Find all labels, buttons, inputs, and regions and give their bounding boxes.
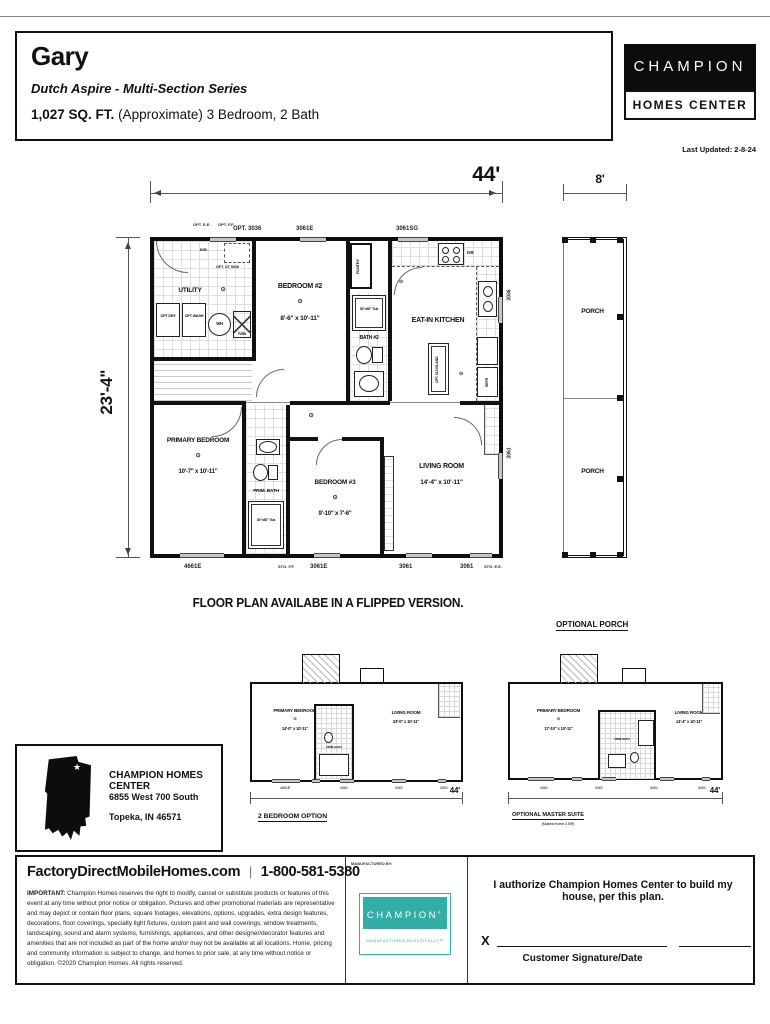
- authorization-text: I authorize Champion Homes Center to bui…: [479, 879, 747, 903]
- window-label: 3061: [540, 786, 548, 790]
- optional-porch-heading: OPTIONAL PORCH: [556, 620, 628, 631]
- star-icon: ★: [73, 762, 81, 773]
- shower: [638, 720, 654, 746]
- champion-teal-wordmark: CHAMPION®: [363, 897, 447, 929]
- window: [702, 777, 710, 781]
- sqft-detail: (Approximate) 3 Bedroom, 2 Bath: [118, 107, 319, 122]
- main-floor-plan: UTILITY ⊙ B/B OPT. UT SINK OPT DRY OPT W…: [150, 237, 503, 558]
- wall: [342, 437, 384, 441]
- dim-label: 44': [690, 786, 720, 796]
- refrigerator-label: REFR: [485, 371, 489, 395]
- window-label: 3061E: [310, 564, 327, 570]
- ceiling-light-symbol: ⊙: [254, 299, 346, 306]
- arrow-left-icon: [151, 190, 161, 196]
- dealer-address2: Topeka, IN 46571: [109, 812, 181, 822]
- arrow-up-icon: [125, 239, 131, 249]
- dim-depth-label: 23'-4": [97, 347, 117, 437]
- important-label: IMPORTANT:: [27, 890, 65, 897]
- sink-bowl: [483, 286, 493, 297]
- porch-label: PORCH: [564, 308, 621, 316]
- window: [314, 553, 340, 558]
- window: [300, 237, 326, 242]
- living-room-dims: 14'-4" x 10'-11": [658, 719, 720, 724]
- arrow-right-icon: [489, 190, 499, 196]
- window: [438, 779, 446, 783]
- pantry: PANTRY: [350, 243, 372, 289]
- porch-post: [617, 237, 623, 243]
- window-label: 3061: [650, 786, 658, 790]
- sink: [259, 441, 277, 453]
- website-link[interactable]: FactoryDirectMobileHomes.com: [27, 864, 240, 880]
- porch-divider: [564, 398, 622, 399]
- champion-logo: CHAMPION HOMES CENTER: [624, 44, 756, 124]
- island-label: OPT. 613 ISLAND: [435, 348, 439, 392]
- burner-icon: [453, 256, 460, 263]
- burner-icon: [442, 247, 449, 254]
- signature-caption: Customer Signature/Date: [505, 953, 660, 964]
- window-label: STG. E.E.: [484, 564, 502, 569]
- window: [312, 779, 320, 783]
- porch: PORCH PORCH: [563, 237, 627, 558]
- model-title: Gary: [31, 41, 88, 72]
- kitchen-island: OPT. 613 ISLAND: [428, 343, 449, 395]
- window: [470, 553, 492, 558]
- opt-utility-sink-label: OPT. UT SINK: [216, 265, 239, 269]
- champion-logo-wordmark: CHAMPION: [624, 44, 756, 90]
- porch-bump: [302, 654, 340, 684]
- primary-bedroom-label: PRIMARY BEDROOM: [154, 437, 242, 445]
- optional-washer: OPT WASH: [182, 303, 206, 337]
- window-label: OPT. F.F.: [218, 222, 234, 227]
- burner-icon: [442, 256, 449, 263]
- water-heater: WH: [208, 313, 231, 336]
- bathtub: 30"x60" Tub: [352, 295, 386, 331]
- wall: [154, 401, 246, 405]
- toilet: [324, 732, 333, 743]
- dim-tick: [626, 184, 627, 201]
- living-room-dims: 14'-4" x 10'-11": [384, 479, 499, 487]
- window: [180, 553, 224, 558]
- door-swing-arc: [256, 369, 284, 397]
- manufactured-by-label: MANUFACTURED BY:: [351, 861, 392, 866]
- entry-stoop: [622, 668, 646, 684]
- window: [660, 777, 674, 781]
- top-rule: [0, 16, 770, 17]
- toilet: [253, 464, 268, 481]
- window-label: OPT. 3036: [233, 226, 261, 232]
- marriage-line: [390, 402, 460, 403]
- signature-x-label: X: [481, 933, 490, 948]
- door-swing-arc: [156, 241, 188, 273]
- window-label: 3061: [340, 786, 348, 790]
- champion-tagline: MANUFACTURED BEAUTIFULLY™: [363, 929, 447, 953]
- window-label: 3061: [399, 564, 412, 570]
- ceiling-light-symbol: ⊙: [454, 371, 468, 377]
- utility-label: UTILITY: [158, 287, 222, 295]
- bb-label: B/B: [200, 247, 207, 252]
- bedroom3-dims: 9'-10" x 7'-6": [290, 511, 380, 518]
- primary-bath-label: PRIM. BATH: [246, 489, 286, 495]
- porch-post: [562, 552, 568, 558]
- furnace: FURN: [233, 311, 251, 338]
- entry-closet: [438, 684, 460, 718]
- dim-width-label: 44': [430, 162, 500, 187]
- toilet: [356, 346, 372, 364]
- window: [406, 553, 432, 558]
- contact-line: FactoryDirectMobileHomes.com | 1-800-581…: [27, 864, 360, 880]
- door-swing-arc: [394, 267, 422, 295]
- wall-oven: [477, 337, 498, 365]
- db-label: DB: [467, 250, 474, 255]
- disclaimer-text: IMPORTANT: Champion Homes reserves the r…: [27, 889, 337, 970]
- refrigerator: REFR: [477, 367, 498, 397]
- porch-post: [590, 237, 596, 243]
- sink: [359, 375, 379, 392]
- pantry-label: PANTRY: [356, 247, 361, 287]
- furnace-label: FURN: [234, 333, 250, 337]
- spec-sheet-page: Gary Dutch Aspire - Multi-Section Series…: [0, 0, 770, 1024]
- range: [438, 243, 464, 265]
- porch-post: [562, 237, 568, 243]
- window-label: 3061: [507, 447, 513, 458]
- footer-box: FactoryDirectMobileHomes.com | 1-800-581…: [15, 855, 755, 985]
- porch-label: PORCH: [564, 468, 621, 476]
- window-label: 4661E: [184, 564, 201, 570]
- porch-bump: [560, 654, 598, 684]
- door-swing-arc: [454, 417, 482, 445]
- primary-bath-label: PRIM. BATH: [602, 738, 642, 742]
- ceiling-light-symbol: ⊙: [154, 453, 242, 460]
- window-label: OPT. E.E.: [193, 222, 211, 227]
- double-sink: [478, 281, 497, 317]
- champion-teal-logo: CHAMPION® MANUFACTURED BEAUTIFULLY™: [359, 893, 451, 955]
- window: [340, 779, 354, 783]
- primary-bath-room: PRIM. BATH: [598, 710, 656, 779]
- window-label: 3061: [395, 786, 403, 790]
- dim-depth-line: [128, 237, 129, 558]
- bath2-room: 30"x60" Tub BATH #2: [350, 293, 388, 401]
- plan-master-suite: PRIMARY BEDROOM ⊙ 17'-10" x 10'-11" PRIM…: [508, 682, 723, 780]
- window: [392, 779, 406, 783]
- bathtub: [319, 754, 349, 776]
- vanity: [608, 754, 626, 768]
- ceiling-light-symbol: ⊙: [290, 495, 380, 502]
- last-updated: Last Updated: 2-8-24: [620, 145, 756, 154]
- dealer-box: ★ CHAMPION HOMES CENTER 6855 West 700 So…: [15, 744, 223, 852]
- window: [272, 779, 300, 783]
- bedroom3-label: BEDROOM #3: [290, 479, 380, 487]
- porch-post: [617, 395, 623, 401]
- ceiling-light-symbol: ⊙: [516, 717, 601, 722]
- optional-dryer-label: OPT DRY: [157, 314, 179, 319]
- window-label: 3061: [460, 564, 473, 570]
- signature-line[interactable]: [497, 933, 667, 947]
- dim-tick: [462, 792, 463, 804]
- door-swing-arc: [212, 407, 242, 437]
- separator: |: [244, 864, 257, 879]
- series-subtitle: Dutch Aspire - Multi-Section Series: [31, 81, 247, 96]
- primary-bath-label: PRIM. BATH: [316, 746, 352, 750]
- header-box: Gary Dutch Aspire - Multi-Section Series…: [15, 31, 613, 141]
- dim-tick: [508, 792, 509, 804]
- plan-master-caption: OPTIONAL MASTER SUITE: [512, 812, 584, 820]
- living-room-label: LIVING ROOM: [384, 463, 499, 471]
- door-swing-arc: [316, 439, 342, 465]
- dim-tick: [722, 792, 723, 804]
- living-room-dims: 23'-0" x 10'-11": [370, 719, 442, 724]
- dim-porch-label: 8': [580, 172, 620, 186]
- dim-tick: [250, 792, 251, 804]
- bath2-label: BATH #2: [350, 335, 388, 341]
- kitchen-label: EAT-IN KITCHEN: [398, 317, 478, 325]
- indiana-state-icon: [43, 756, 91, 840]
- dim-line: [508, 798, 723, 799]
- window: [498, 453, 503, 479]
- primary-bedroom-dims: 10'-7" x 10'-11": [154, 469, 242, 476]
- flipped-version-note: FLOOR PLAN AVAILABE IN A FLIPPED VERSION…: [159, 596, 497, 611]
- porch-post: [617, 552, 623, 558]
- disclaimer-body: Champion Homes reserves the right to mod…: [27, 890, 335, 967]
- dim-label: 44': [430, 786, 460, 796]
- entry-stoop: [360, 668, 384, 684]
- sink-bowl: [483, 301, 493, 312]
- window: [398, 237, 428, 242]
- window: [498, 297, 503, 323]
- kitchen-room: DB EAT-IN KITCHEN ⊙ ⊙ OPT. 613 ISLAND RE…: [392, 241, 499, 401]
- storage-area: [154, 361, 252, 401]
- toilet-tank: [372, 347, 383, 363]
- sqft-line: 1,027 SQ. FT. (Approximate) 3 Bedroom, 2…: [31, 107, 319, 122]
- dim-width-line: [150, 193, 503, 194]
- dealer-name: CHAMPION HOMES CENTER: [109, 770, 221, 792]
- divider: [467, 857, 468, 983]
- window: [572, 777, 582, 781]
- primary-bedroom-dims: 17'-10" x 10'-11": [516, 726, 601, 731]
- toilet-tank: [268, 465, 278, 480]
- dealer-address1: 6855 West 700 South: [109, 792, 198, 802]
- arrow-down-icon: [125, 548, 131, 558]
- entry-closet: [484, 405, 499, 455]
- champion-teal-text: CHAMPION: [367, 910, 438, 921]
- bedroom2-label: BEDROOM #2: [254, 283, 346, 291]
- ceiling-light-symbol: ⊙: [216, 287, 230, 294]
- sqft-value: 1,027 SQ. FT.: [31, 107, 114, 122]
- living-room-label: LIVING ROOM: [370, 710, 442, 716]
- registered-mark: ®: [438, 911, 443, 915]
- dim-tick: [116, 237, 140, 238]
- primary-bath-room: PRIM. BATH: [314, 704, 354, 779]
- window-label: 3061: [595, 786, 603, 790]
- primary-bedroom-label: PRIMARY BEDROOM: [516, 708, 601, 714]
- optional-dryer: OPT DRY: [156, 303, 180, 337]
- opt-utility-sink: [224, 243, 250, 263]
- wall: [290, 401, 390, 405]
- dim-porch-line: [563, 193, 627, 194]
- porch-post: [617, 476, 623, 482]
- water-heater-label: WH: [209, 321, 230, 326]
- ceiling-light-symbol: ⊙: [304, 413, 318, 420]
- window-label: STG. F.F.: [278, 564, 295, 569]
- bathtub-label: 30"x60" Tub: [355, 307, 383, 311]
- porch-post: [590, 552, 596, 558]
- entry-closet: [702, 684, 720, 714]
- plan-master-subcaption: (Makes Home 2 BR): [512, 822, 604, 827]
- bedroom2-dims: 8'-6" x 10'-11": [254, 315, 346, 323]
- marriage-line: [246, 402, 290, 403]
- window: [528, 777, 554, 781]
- wall: [290, 437, 318, 441]
- window-label: 3061SG: [396, 226, 418, 232]
- homes-center-wordmark: HOMES CENTER: [624, 90, 756, 120]
- utility-room: UTILITY ⊙ B/B OPT. UT SINK OPT DRY OPT W…: [154, 241, 252, 359]
- date-line[interactable]: [679, 933, 751, 947]
- plan-2br: PRIMARY BEDROOM ⊙ 14'-0" x 10'-11" PRIM.…: [250, 682, 463, 782]
- dim-tick: [502, 181, 503, 203]
- bathtub: 30"x60" Tub: [248, 501, 284, 549]
- optional-washer-label: OPT WASH: [183, 314, 205, 319]
- plan-2br-caption: 2 BEDROOM OPTION: [258, 813, 327, 822]
- dim-tick: [563, 184, 564, 201]
- toilet: [630, 752, 639, 763]
- phone-number[interactable]: 1-800-581-5380: [261, 864, 360, 880]
- window: [210, 237, 236, 242]
- window: [602, 777, 616, 781]
- primary-bath-room: PRIM. BATH 30"x60" Tub: [246, 405, 286, 554]
- window-label: 4661E: [280, 786, 290, 790]
- window-label: 3061E: [296, 226, 313, 232]
- bathtub-label: 30"x60" Tub: [253, 518, 279, 522]
- dim-line: [250, 798, 463, 799]
- burner-icon: [453, 247, 460, 254]
- window-label: 3036: [507, 289, 513, 300]
